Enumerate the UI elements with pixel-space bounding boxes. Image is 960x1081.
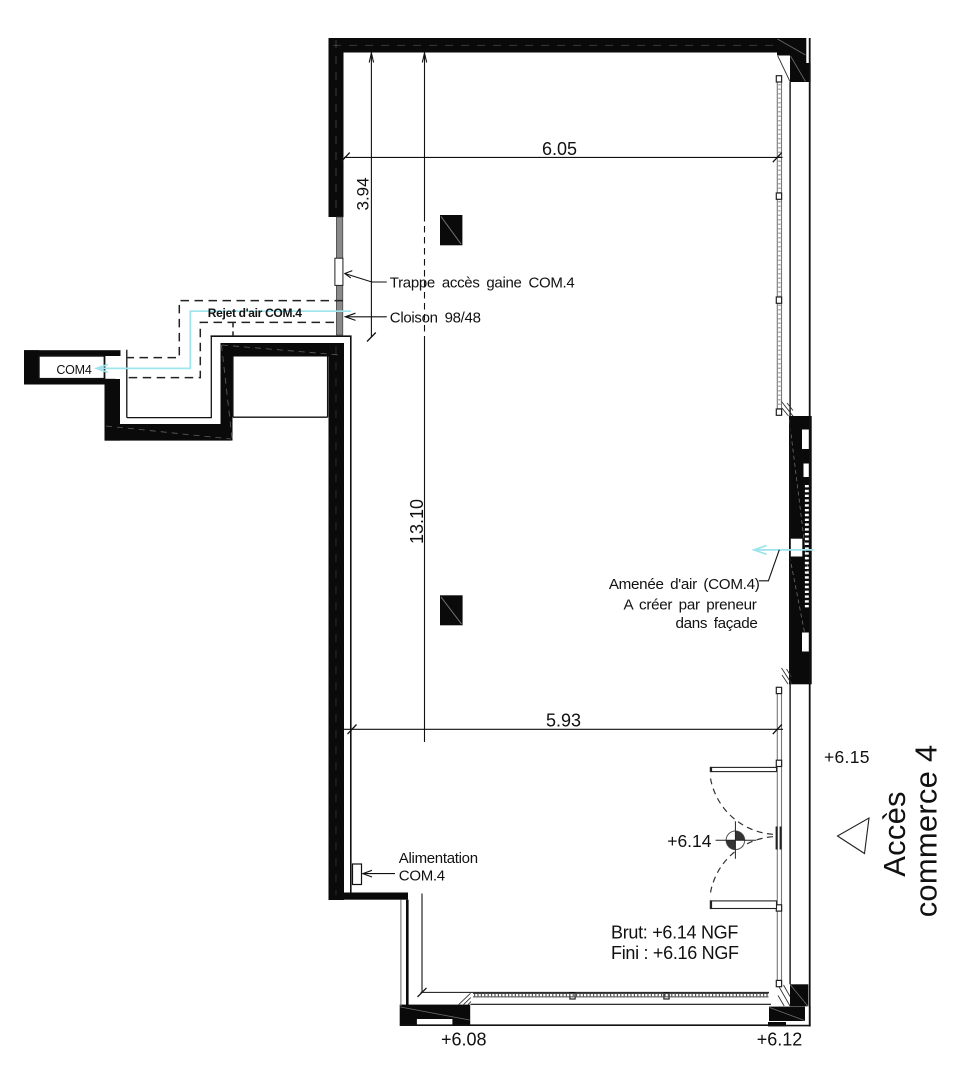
- svg-text:Accès: Accès: [877, 791, 912, 876]
- svg-text:5.93: 5.93: [546, 711, 581, 731]
- svg-text:+6.12: +6.12: [757, 1030, 803, 1050]
- svg-text:Trappe accès gaine COM.4: Trappe accès gaine COM.4: [390, 274, 575, 291]
- svg-text:Cloison 98/48: Cloison 98/48: [390, 310, 481, 327]
- svg-text:Fini : +6.16 NGF: Fini : +6.16 NGF: [611, 943, 739, 963]
- svg-text:+6.15: +6.15: [824, 747, 870, 767]
- svg-text:dans façade: dans façade: [675, 615, 757, 632]
- svg-text:Rejet d'air COM.4: Rejet d'air COM.4: [208, 306, 302, 320]
- svg-text:3.94: 3.94: [353, 177, 372, 210]
- svg-text:+6.14: +6.14: [667, 831, 712, 851]
- svg-text:COM.4: COM.4: [399, 868, 445, 885]
- svg-text:+6.08: +6.08: [441, 1029, 487, 1049]
- svg-text:6.05: 6.05: [542, 139, 577, 159]
- svg-text:13.10: 13.10: [407, 499, 427, 544]
- svg-text:COM4: COM4: [56, 363, 92, 377]
- svg-text:Amenée d'air (COM.4): Amenée d'air (COM.4): [609, 576, 760, 593]
- svg-text:A créer par preneur: A créer par preneur: [624, 597, 757, 614]
- svg-text:Brut: +6.14 NGF: Brut: +6.14 NGF: [611, 922, 738, 942]
- svg-text:Alimentation: Alimentation: [399, 850, 478, 867]
- svg-text:commerce 4: commerce 4: [908, 745, 943, 918]
